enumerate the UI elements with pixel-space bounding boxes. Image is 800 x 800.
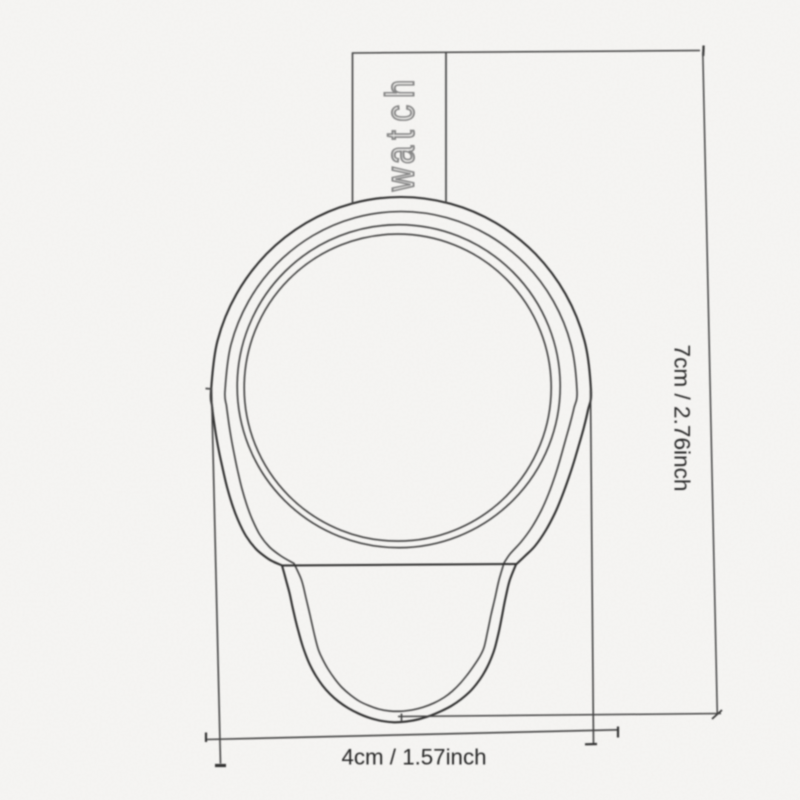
svg-text:7cm / 2.76inch: 7cm / 2.76inch	[670, 345, 695, 492]
svg-text:c: c	[377, 105, 422, 121]
svg-text:a: a	[377, 145, 422, 164]
svg-text:w: w	[377, 167, 422, 192]
svg-text:h: h	[377, 80, 422, 98]
svg-text:4cm / 1.57inch: 4cm / 1.57inch	[341, 744, 486, 769]
svg-text:t: t	[377, 130, 422, 139]
